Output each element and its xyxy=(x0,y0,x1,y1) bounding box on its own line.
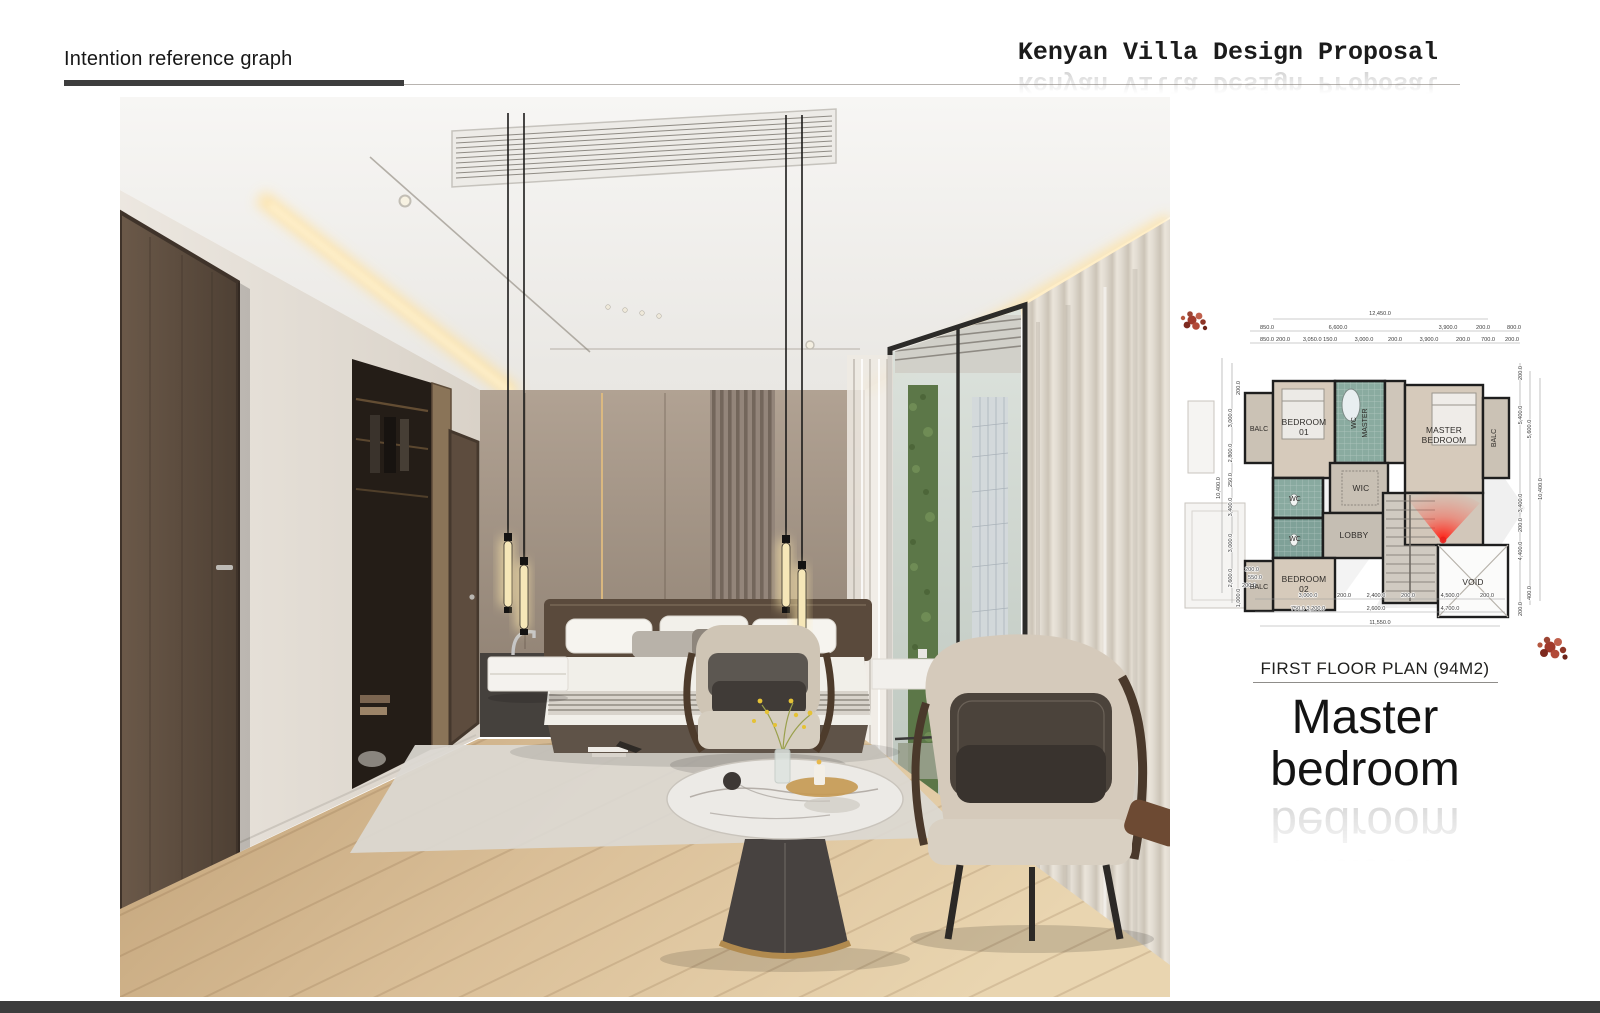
interior-render-photo xyxy=(120,97,1170,997)
wardrobe-niche xyxy=(352,359,451,789)
svg-text:200.0: 200.0 xyxy=(1518,366,1524,380)
entry-door xyxy=(120,212,250,939)
svg-text:3,400.0: 3,400.0 xyxy=(1228,498,1234,517)
svg-text:3,050.0 150.0: 3,050.0 150.0 xyxy=(1303,337,1337,343)
room-label-wc-master: WC xyxy=(1351,417,1358,429)
svg-text:6,600.0: 6,600.0 xyxy=(1329,325,1348,331)
room-label-lobby: LOBBY xyxy=(1340,530,1369,540)
svg-text:550.0: 550.0 xyxy=(1248,575,1262,581)
svg-text:200.0: 200.0 xyxy=(1518,602,1524,616)
svg-text:200.0: 200.0 xyxy=(1480,593,1494,599)
plan-caption: FIRST FLOOR PLAN (94M2) xyxy=(1205,659,1545,679)
svg-text:2,600.0: 2,600.0 xyxy=(1228,569,1234,588)
closet-door xyxy=(432,383,451,749)
svg-text:1,000.0: 1,000.0 xyxy=(1236,589,1242,608)
coral-decoration-top xyxy=(1181,311,1207,330)
room-label-master-bedroom: MASTER xyxy=(1426,425,1462,435)
headline-line1: Master xyxy=(1185,692,1545,744)
footer-bar xyxy=(0,1001,1600,1013)
svg-text:BEDROOM: BEDROOM xyxy=(1422,435,1467,445)
svg-text:200.0: 200.0 xyxy=(1505,337,1519,343)
adjacent-roof xyxy=(1185,401,1245,608)
svg-text:3,000.0: 3,000.0 xyxy=(1228,409,1234,428)
svg-text:850.0: 850.0 xyxy=(1260,337,1274,343)
svg-text:200.0: 200.0 xyxy=(1401,593,1415,599)
svg-text:10,400.0: 10,400.0 xyxy=(1538,478,1544,500)
svg-text:200.0: 200.0 xyxy=(1337,593,1351,599)
svg-text:200.0: 200.0 xyxy=(1245,567,1259,573)
room-label-wc-lower: WC xyxy=(1289,536,1301,543)
first-floor-plan: 12,450.0850.06,600.03,900.0200.0800.0850… xyxy=(1170,293,1570,665)
svg-text:200.0: 200.0 xyxy=(1236,381,1242,395)
svg-text:02: 02 xyxy=(1299,584,1309,594)
door-handle xyxy=(216,565,233,570)
svg-text:200.0: 200.0 xyxy=(1518,518,1524,532)
svg-text:3,900.0: 3,900.0 xyxy=(1439,325,1458,331)
svg-text:01: 01 xyxy=(1299,427,1309,437)
svg-text:3,900.0: 3,900.0 xyxy=(1420,337,1439,343)
header-rule-thick xyxy=(64,80,404,86)
svg-text:4,400.0: 4,400.0 xyxy=(1518,542,1524,561)
room-label-bedroom02: BEDROOM xyxy=(1282,574,1327,584)
svg-text:750.0 3,200.0: 750.0 3,200.0 xyxy=(1291,606,1325,612)
inner-door xyxy=(450,431,478,745)
svg-text:2,800.0: 2,800.0 xyxy=(1228,444,1234,463)
headline-line2: bedroom xyxy=(1185,744,1545,796)
svg-text:200.0: 200.0 xyxy=(1276,337,1290,343)
page-title: Kenyan Villa Design Proposal xyxy=(1008,38,1438,67)
svg-text:400.0: 400.0 xyxy=(1527,586,1533,600)
svg-text:700.0: 700.0 xyxy=(1481,337,1495,343)
page-title-reflection: Kenyan Villa Design Proposal xyxy=(1008,69,1438,98)
svg-text:200.0: 200.0 xyxy=(1388,337,1402,343)
svg-text:3,000.0: 3,000.0 xyxy=(1228,534,1234,553)
svg-text:5,400.0: 5,400.0 xyxy=(1518,406,1524,425)
svg-text:MASTER: MASTER xyxy=(1362,408,1369,437)
svg-text:800.0: 800.0 xyxy=(1507,325,1521,331)
headline: Master bedroom xyxy=(1185,692,1545,796)
svg-text:5,600.0: 5,600.0 xyxy=(1527,420,1533,439)
svg-text:3,000.0: 3,000.0 xyxy=(1355,337,1374,343)
room-label-balc-bl: BALC xyxy=(1250,584,1268,591)
room-label-balc-tl: BALC xyxy=(1250,426,1268,433)
section-label: Intention reference graph xyxy=(64,48,293,71)
coral-decoration-bottom xyxy=(1537,637,1567,660)
svg-text:3,400.0: 3,400.0 xyxy=(1518,494,1524,513)
svg-text:4,500.0: 4,500.0 xyxy=(1441,593,1460,599)
svg-text:4,700.0: 4,700.0 xyxy=(1441,606,1460,612)
svg-text:12,450.0: 12,450.0 xyxy=(1369,311,1391,317)
room-label-wic: WIC xyxy=(1353,483,1370,493)
svg-text:10,400.0: 10,400.0 xyxy=(1216,477,1222,499)
svg-text:2,600.0: 2,600.0 xyxy=(1367,606,1386,612)
room-label-bedroom01: BEDROOM xyxy=(1282,417,1327,427)
room-label-wc-upper: WC xyxy=(1289,496,1301,503)
room-label-balc-right: BALC xyxy=(1491,429,1498,447)
svg-text:2,400.0: 2,400.0 xyxy=(1367,593,1386,599)
headline-reflection: Master bedroom xyxy=(1185,797,1545,901)
vase xyxy=(775,749,790,783)
svg-text:200.0: 200.0 xyxy=(1456,337,1470,343)
room-label-void: VOID xyxy=(1462,577,1483,587)
svg-text:850.0: 850.0 xyxy=(1260,325,1274,331)
svg-text:11,550.0: 11,550.0 xyxy=(1369,620,1390,626)
svg-text:200.0: 200.0 xyxy=(1476,325,1490,331)
svg-text:250.0: 250.0 xyxy=(1228,473,1234,487)
